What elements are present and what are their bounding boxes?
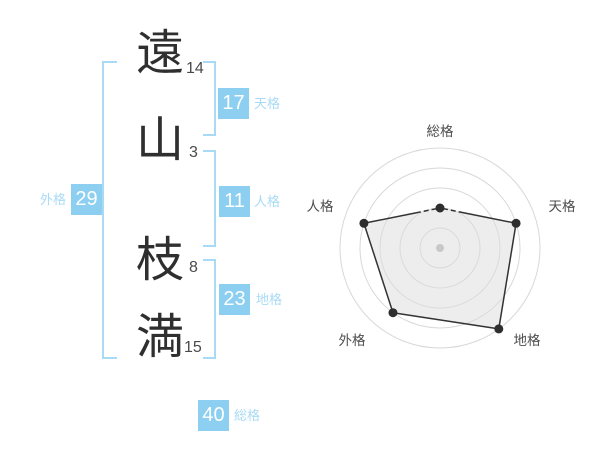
radar-axis-label-4: 人格 [307,199,334,214]
jinkaku-badge: 11 [219,186,250,217]
radar-axis-label-1: 天格 [549,199,577,214]
radar-axis-label-2: 地格 [514,333,542,348]
stroke-count-1: 14 [186,61,204,77]
chikaku-badge: 23 [219,284,250,315]
soukaku-badge: 40 [198,400,229,431]
name-char-3: 枝 [132,237,188,285]
tenkaku-badge: 17 [218,88,249,119]
tenkaku-bracket [203,61,216,136]
chikaku-label: 地格 [256,293,282,306]
name-char-2: 山 [132,117,188,165]
stroke-count-2: 3 [189,145,198,161]
name-char-1: 遠 [132,30,188,78]
radar-axis-label-0: 総格 [427,124,454,139]
stroke-count-3: 8 [189,260,198,276]
chikaku-bracket [203,259,216,359]
jinkaku-label: 人格 [254,195,280,208]
soukaku-label: 総格 [234,409,260,422]
tenkaku-label: 天格 [254,97,280,110]
stroke-count-4: 15 [184,340,202,356]
jinkaku-bracket [203,150,216,247]
gaikaku-badge: 29 [71,184,102,215]
gaikaku-bracket [102,61,117,359]
radar-chart: 総格天格地格外格人格 [290,110,590,360]
name-char-4: 満 [132,314,188,362]
radar-axis-label-3: 外格 [339,333,366,348]
gaikaku-label: 外格 [40,193,66,206]
